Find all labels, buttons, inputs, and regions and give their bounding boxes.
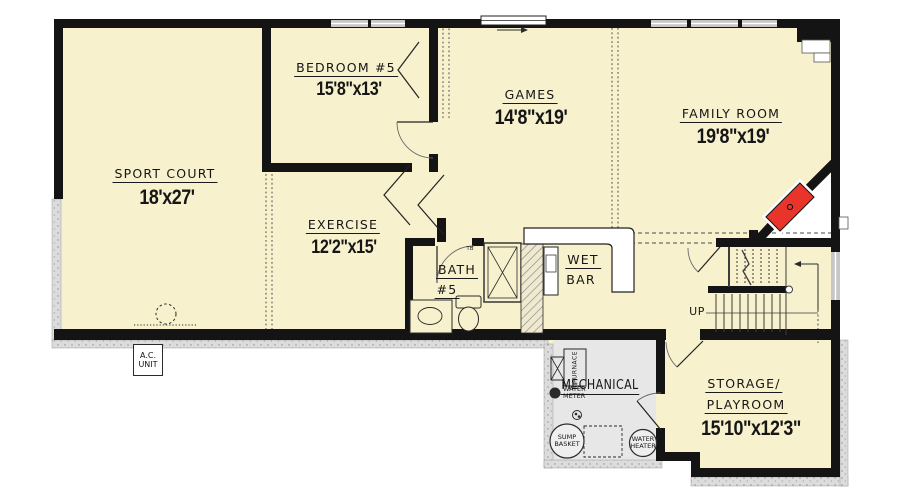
storage-label-line1: STORAGE/ [705,376,782,393]
games-dims: 14'8"x19' [495,106,568,130]
furnace-label: FURNACE [572,351,579,383]
family-room-dims: 19'8"x19' [697,125,770,149]
bar-sink [546,255,556,272]
corner-nook-outline [802,40,830,53]
wet-bar-label-line1: WET [565,252,601,269]
right-wall-window [831,252,840,300]
floor-plan: SPORT COURT 18'x27' BEDROOM #5 15'8"x13'… [0,0,900,503]
water-meter-line2: METER [563,393,586,400]
storage-dims: 15'10"x12'3" [701,417,801,441]
water-heater-label: WATER HEATER [630,436,656,450]
towel-bar-label: TB [466,246,473,252]
exercise-label: EXERCISE [306,217,380,234]
sump-basket-label: SUMP BASKET [554,434,579,448]
sink-basin [418,308,442,325]
ac-unit-line1: A.C. [140,351,156,360]
wet-bar-label-line2: BAR [566,272,595,287]
water-meter-symbol [550,388,560,398]
storage-label-line2: PLAYROOM [705,397,788,414]
ac-unit-line2: UNIT [138,360,157,369]
newel-post [786,286,793,293]
bedroom5-dims: 15'8"x13' [316,79,381,101]
family-room-windows [651,20,777,27]
sport-court-label: SPORT COURT [112,166,217,183]
wall-bump [839,217,848,229]
sport-court-dims: 18'x27' [139,186,194,210]
games-label: GAMES [503,87,558,104]
exercise-dims: 12'2"x15' [311,237,376,259]
games-slider-door [481,16,546,25]
chase-hatch [521,244,543,333]
toilet-bowl [459,307,479,331]
bath5-label-line2: #5 [435,282,460,299]
family-room-label: FAMILY ROOM [680,106,782,123]
sump-basket-line2: BASKET [554,441,579,448]
water-meter-label: WATER METER [563,386,586,400]
up-label: UP [689,305,705,318]
ac-unit-box: A.C. UNIT [133,344,163,376]
corner-nook-step [814,53,830,62]
bedroom-windows [331,20,405,27]
bedroom5-label: BEDROOM #5 [294,60,398,77]
toilet-tank [456,296,481,308]
bath5-label-line1: BATH [436,262,478,279]
water-heater-line2: HEATER [630,443,656,450]
